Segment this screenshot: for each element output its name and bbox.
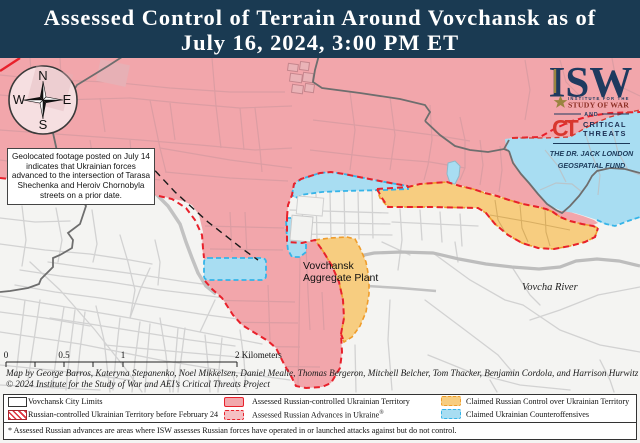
svg-text:AND: AND: [584, 112, 599, 118]
svg-text:1: 1: [121, 350, 126, 360]
svg-text:Vovcha River: Vovcha River: [522, 282, 579, 293]
svg-text:0: 0: [4, 350, 9, 360]
svg-text:THE DR. JACK LONDON: THE DR. JACK LONDON: [550, 149, 634, 158]
svg-text:W: W: [13, 92, 26, 107]
svg-text:Vovchansk: Vovchansk: [303, 260, 355, 272]
svg-text:S: S: [39, 117, 48, 132]
svg-text:0.5: 0.5: [58, 350, 70, 360]
svg-text:2 Kilometers: 2 Kilometers: [235, 350, 282, 360]
svg-text:CRITICAL: CRITICAL: [583, 120, 627, 129]
svg-text:GEOSPATIAL FUND: GEOSPATIAL FUND: [558, 161, 625, 170]
svg-text:THREATS: THREATS: [583, 129, 627, 138]
svg-text:STUDY OF WAR: STUDY OF WAR: [568, 101, 629, 110]
svg-text:N: N: [38, 68, 47, 83]
svg-text:E: E: [63, 92, 72, 107]
svg-text:Aggregate Plant: Aggregate Plant: [303, 272, 378, 284]
